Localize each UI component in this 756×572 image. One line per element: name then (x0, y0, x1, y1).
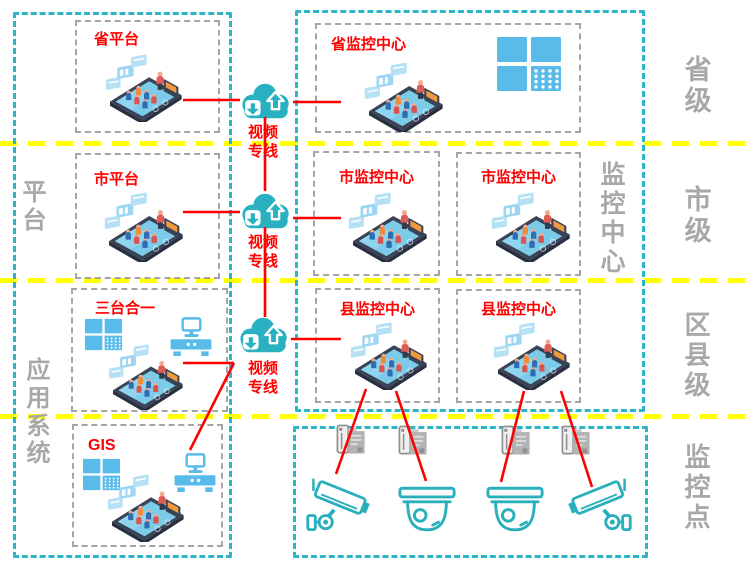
bullet-camera-icon (568, 474, 634, 540)
level-label-monitoring-point: 监控点 (683, 442, 712, 532)
level-label-city: 市级 (683, 185, 713, 248)
video-line-label: 视频专线 (246, 234, 280, 272)
box-title: 市监控中心 (315, 166, 438, 187)
side-label-application-system: 应用系统 (25, 357, 52, 468)
box-title: GIS (88, 437, 116, 455)
box-title: 省平台 (94, 28, 139, 49)
diagram-canvas: 平台 应用系统 监控中心 省级 市级 区县级 监控点 省平台 市平台 三台合一 … (0, 0, 756, 572)
video-wall-icon (497, 37, 561, 91)
box-title: 市监控中心 (458, 166, 579, 187)
meeting-room-phone-icon (346, 190, 432, 262)
bullet-camera-icon (304, 474, 370, 540)
meeting-room-phone-icon (106, 342, 188, 410)
box-title: 县监控中心 (317, 298, 438, 319)
meeting-room-phone-icon (489, 190, 575, 262)
box-title: 省监控中心 (331, 33, 406, 54)
box-title: 市平台 (94, 168, 139, 189)
cloud-sync-icon (237, 80, 295, 122)
meeting-room-phone-icon (361, 60, 449, 132)
side-label-monitoring-center: 监控中心 (599, 161, 627, 277)
box-title: 三台合一 (95, 297, 155, 318)
cloud-sync-icon (237, 190, 295, 232)
box-title: 县监控中心 (458, 298, 579, 319)
level-label-district-county: 区县级 (683, 310, 712, 400)
level-label-province: 省级 (683, 55, 713, 118)
dome-camera-icon (485, 486, 545, 535)
meeting-room-phone-icon (104, 472, 190, 542)
meeting-room-phone-icon (491, 320, 575, 390)
video-line-label: 视频专线 (246, 360, 280, 398)
dome-camera-icon (397, 486, 457, 535)
video-line-label: 视频专线 (246, 124, 280, 162)
nvr-icon (398, 424, 428, 457)
nvr-icon (336, 423, 366, 456)
side-label-platform: 平台 (21, 179, 48, 235)
nvr-icon (561, 424, 591, 457)
cloud-sync-icon (235, 314, 293, 356)
meeting-room-phone-icon (101, 52, 189, 122)
nvr-icon (501, 424, 531, 457)
meeting-room-phone-icon (348, 320, 432, 390)
meeting-room-phone-icon (101, 190, 189, 262)
